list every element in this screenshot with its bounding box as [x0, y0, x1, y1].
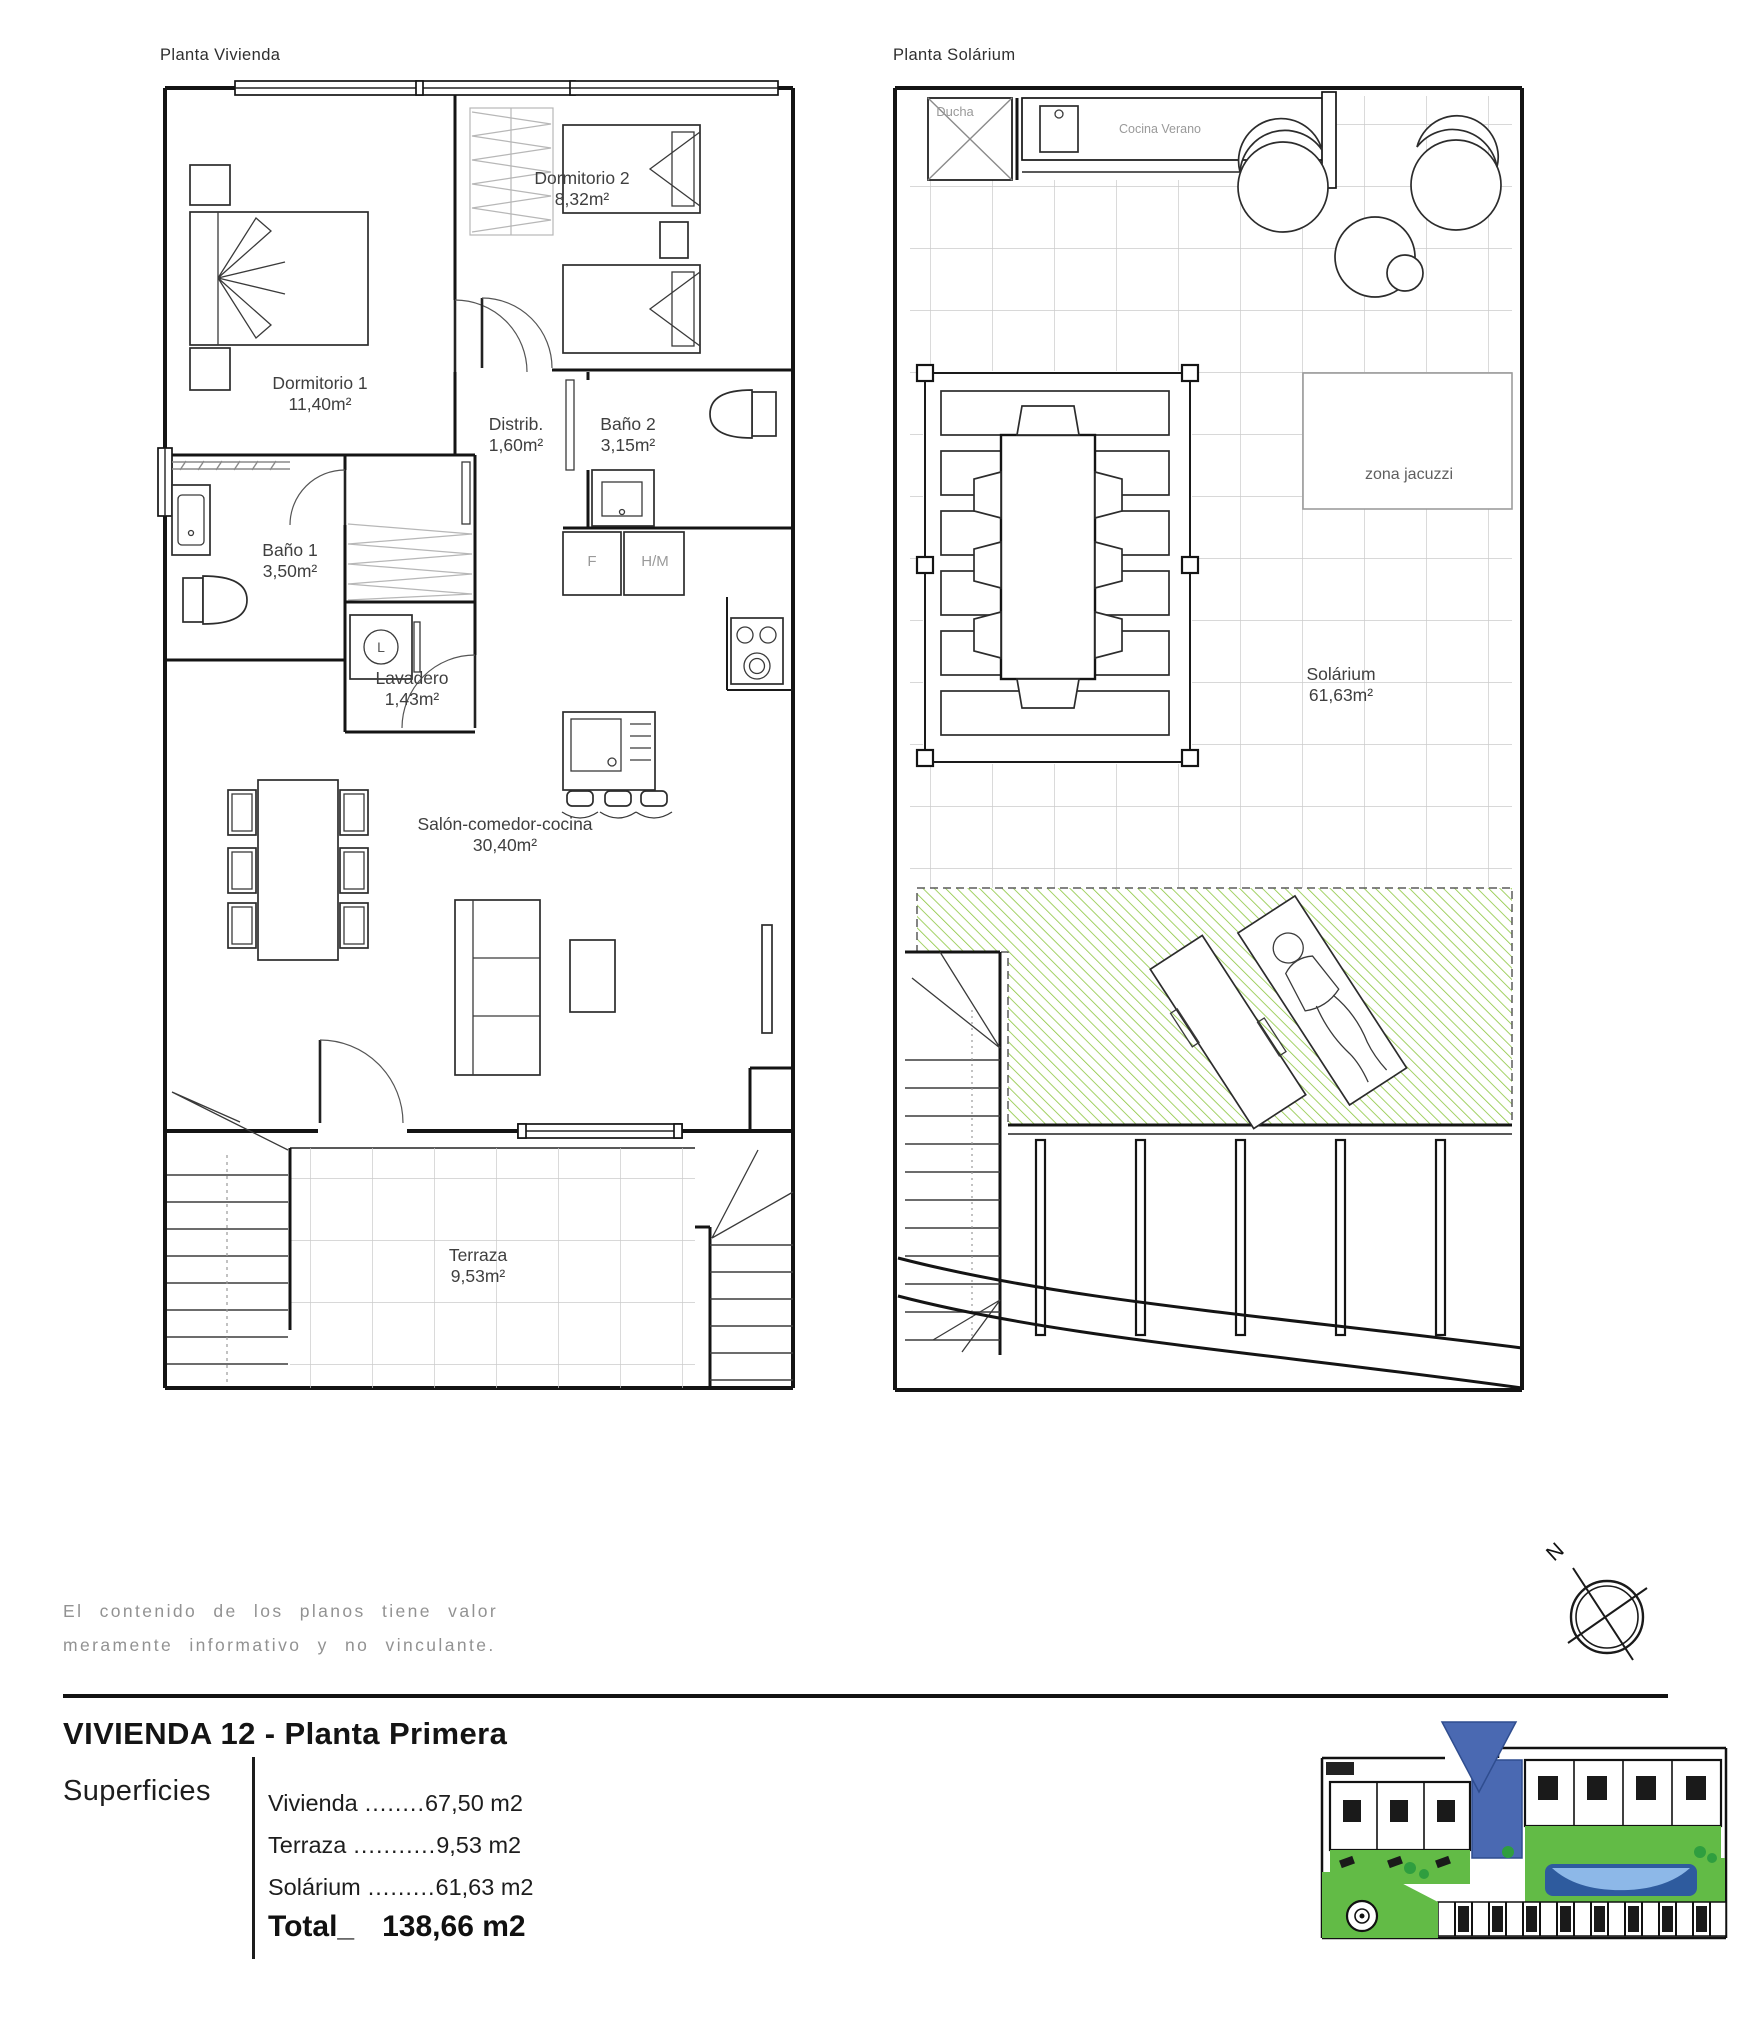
- sink: [592, 470, 654, 526]
- room-label-lavadero: Lavadero 1,43m²: [376, 668, 449, 711]
- dorm1-furniture: [190, 165, 368, 390]
- solarium-stair: [905, 952, 1000, 1355]
- tv-board: [762, 925, 772, 1033]
- void-below: [898, 1140, 1522, 1388]
- superficies-total: Total_138,66 m2: [268, 1910, 526, 1944]
- dining-table: [258, 780, 338, 960]
- fridge-label: F: [587, 553, 596, 570]
- washer-label: L: [377, 639, 385, 655]
- sun-deck: [917, 888, 1512, 1134]
- plan-sheet: N Planta Vivien: [0, 0, 1752, 2032]
- jacuzzi-label: zona jacuzzi: [1365, 466, 1453, 484]
- sofa: [455, 900, 540, 1075]
- divider-line: [63, 1694, 1668, 1698]
- superficie-row-terraza: Terraza...........9,53 m2: [268, 1824, 533, 1866]
- superficie-row-vivienda: Vivienda........67,50 m2: [268, 1782, 533, 1824]
- site-plan-thumbnail: [1322, 1722, 1726, 1938]
- plan-title-solarium: Planta Solárium: [893, 46, 1015, 65]
- oven-label: H/M: [641, 553, 669, 570]
- room-label-distrib: Distrib. 1,60m²: [489, 414, 543, 457]
- room-label-bano1: Baño 1 3,50m²: [262, 540, 317, 583]
- toilet-tank: [752, 392, 776, 436]
- room-label-dormitorio1: Dormitorio 1 11,40m²: [272, 373, 367, 416]
- outdoor-table: [1001, 435, 1095, 679]
- room-label-terraza: Terraza 9,53m²: [449, 1245, 507, 1288]
- coffee-table: [570, 940, 615, 1012]
- superficies-rows: Vivienda........67,50 m2 Terraza........…: [268, 1782, 533, 1908]
- jacuzzi-zone: [1303, 373, 1512, 509]
- kitchen: [562, 532, 793, 818]
- superficie-row-solarium: Solárium.........61,63 m2: [268, 1866, 533, 1908]
- plan-vivienda: [158, 81, 793, 1388]
- nightstand: [190, 348, 230, 390]
- stair-left: [167, 1092, 290, 1385]
- double-bed: [190, 212, 368, 345]
- room-label-solarium: Solárium 61,63m²: [1306, 664, 1375, 707]
- pergola: [917, 365, 1198, 766]
- single-bed: [563, 265, 700, 353]
- north-label: N: [1542, 1538, 1569, 1565]
- room-label-bano2: Baño 2 3,15m²: [600, 414, 655, 457]
- toilet-bowl: [710, 390, 752, 438]
- toilet-bowl: [203, 576, 247, 624]
- nightstand: [190, 165, 230, 205]
- plan-solarium: [895, 88, 1522, 1390]
- dorm2-furniture: [563, 125, 700, 353]
- room-label-dormitorio2: Dormitorio 2 8,32m²: [534, 168, 629, 211]
- nightstand: [660, 222, 688, 258]
- plan-title-vivienda: Planta Vivienda: [160, 46, 280, 65]
- closet: [348, 462, 472, 600]
- sink: [1040, 106, 1078, 152]
- superficies-divider: [252, 1757, 255, 1959]
- compass: N: [1542, 1538, 1647, 1660]
- ducha-label: Ducha: [936, 104, 974, 119]
- disclaimer-text: El contenido de los planos tiene valor m…: [63, 1594, 498, 1662]
- stair-right: [695, 1150, 793, 1388]
- curved-rail: [898, 1258, 1522, 1388]
- room-label-salon: Salón-comedor-cocina 30,40m²: [417, 814, 592, 857]
- sheet-title: VIVIENDA 12 - Planta Primera: [63, 1716, 507, 1752]
- bano2-fixtures: [592, 390, 776, 526]
- cocina-verano-label: Cocina Verano: [1119, 122, 1201, 136]
- superficies-label: Superficies: [63, 1775, 211, 1808]
- terraza: [167, 1092, 793, 1388]
- toilet-tank: [183, 578, 203, 622]
